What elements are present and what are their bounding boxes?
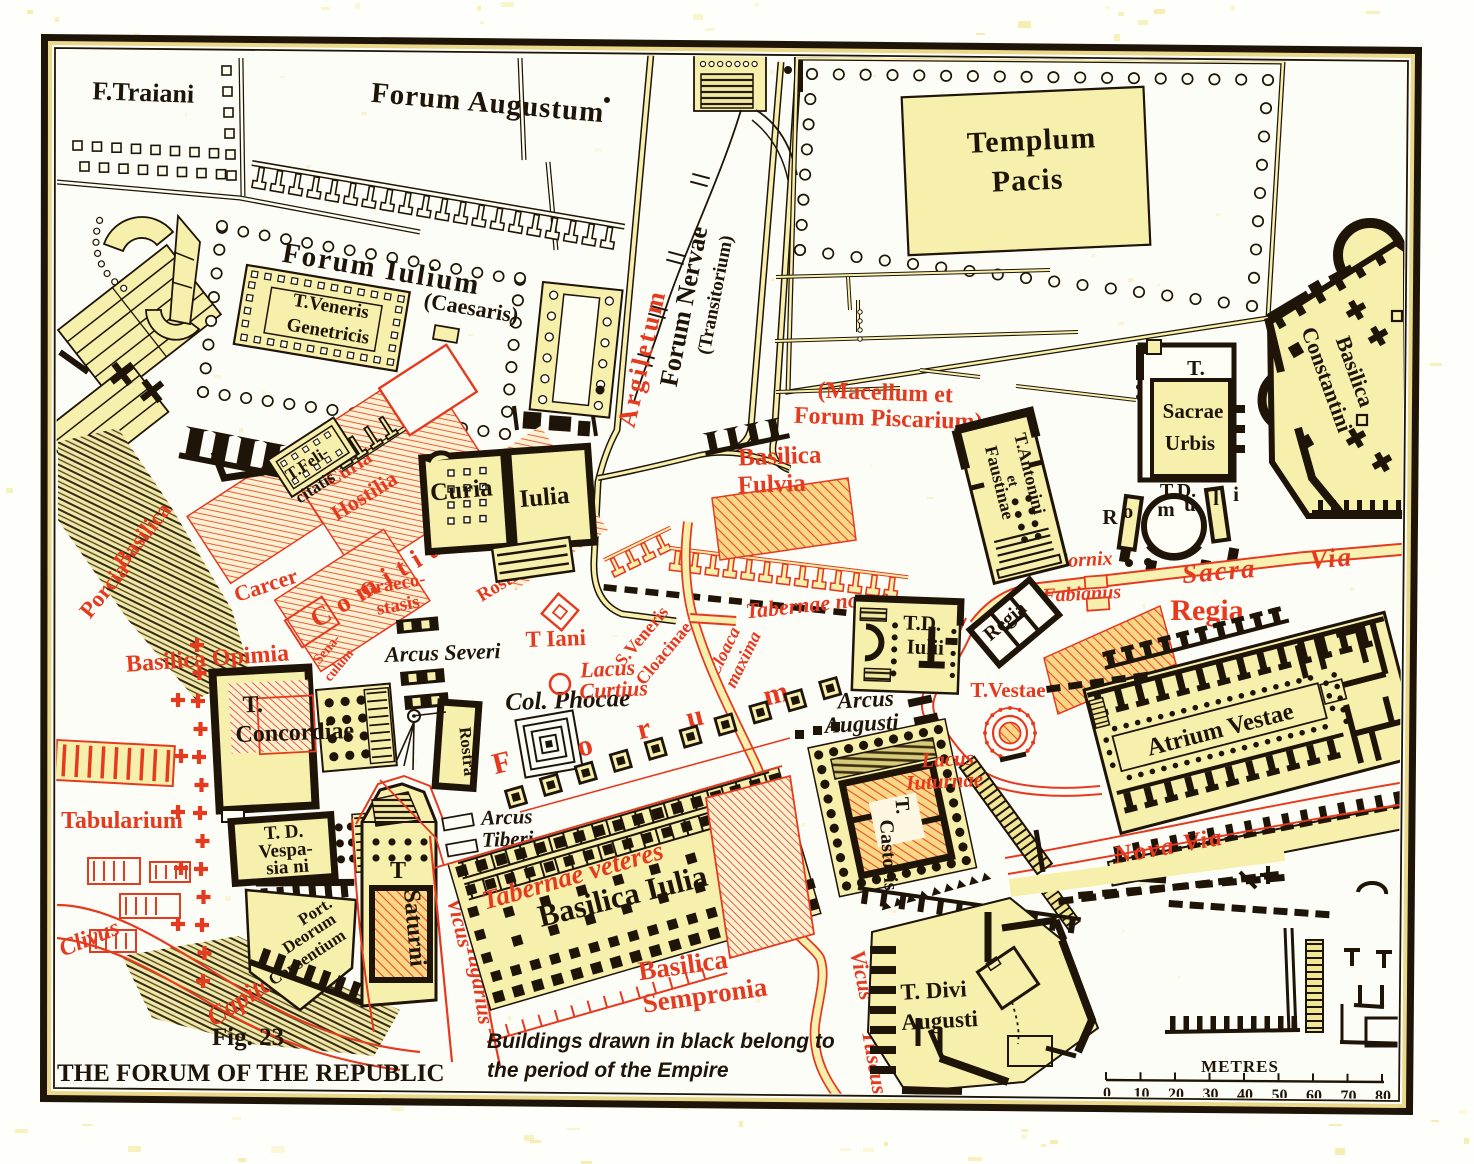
svg-text:THE FORUM OF THE REPUBLIC: THE FORUM OF THE REPUBLIC <box>57 1060 445 1087</box>
svg-text:Concordiae: Concordiae <box>235 718 355 748</box>
svg-text:F.Traiani: F.Traiani <box>92 76 195 109</box>
svg-text:l: l <box>1213 486 1219 510</box>
svg-text:T.: T. <box>1187 356 1205 380</box>
svg-text:T Iani: T Iani <box>525 625 587 652</box>
svg-text:T.Vestae: T.Vestae <box>970 678 1045 702</box>
svg-text:Via: Via <box>1308 541 1354 575</box>
svg-text:Buildings drawn in black belon: Buildings drawn in black belong to <box>487 1030 835 1053</box>
svg-text:T.: T. <box>890 796 913 814</box>
svg-text:Tabularium: Tabularium <box>61 808 183 834</box>
svg-text:Curia: Curia <box>429 474 494 506</box>
svg-text:T: T <box>390 858 406 884</box>
svg-text:Fig. 23: Fig. 23 <box>212 1024 284 1051</box>
svg-text:Iulii: Iulii <box>906 634 944 659</box>
svg-text:R: R <box>1102 505 1118 529</box>
svg-text:METRES: METRES <box>1201 1057 1279 1076</box>
svg-text:Iuturnae: Iuturnae <box>905 767 984 795</box>
svg-text:sia ni: sia ni <box>266 856 310 880</box>
svg-text:Sacrae: Sacrae <box>1163 399 1224 423</box>
svg-text:Arcus Severi: Arcus Severi <box>383 638 502 667</box>
svg-text:Pacis: Pacis <box>991 162 1064 198</box>
svg-text:T.: T. <box>242 692 263 719</box>
svg-text:Basilica: Basilica <box>738 442 823 472</box>
svg-text:Urbis: Urbis <box>1165 431 1215 455</box>
svg-text:o: o <box>1123 499 1134 523</box>
svg-text:i: i <box>1233 482 1239 506</box>
svg-text:Fulvia: Fulvia <box>737 470 806 499</box>
svg-text:Iulia: Iulia <box>518 482 571 513</box>
svg-text:Augusti: Augusti <box>901 1006 980 1035</box>
svg-text:Templum: Templum <box>966 121 1097 160</box>
svg-text:u: u <box>1184 492 1196 516</box>
svg-text:T.D.: T.D. <box>903 610 942 635</box>
svg-text:the period of the Empire: the period of the Empire <box>487 1059 729 1082</box>
svg-text:m: m <box>1157 497 1175 521</box>
svg-text:T. Divi: T. Divi <box>900 976 968 1004</box>
